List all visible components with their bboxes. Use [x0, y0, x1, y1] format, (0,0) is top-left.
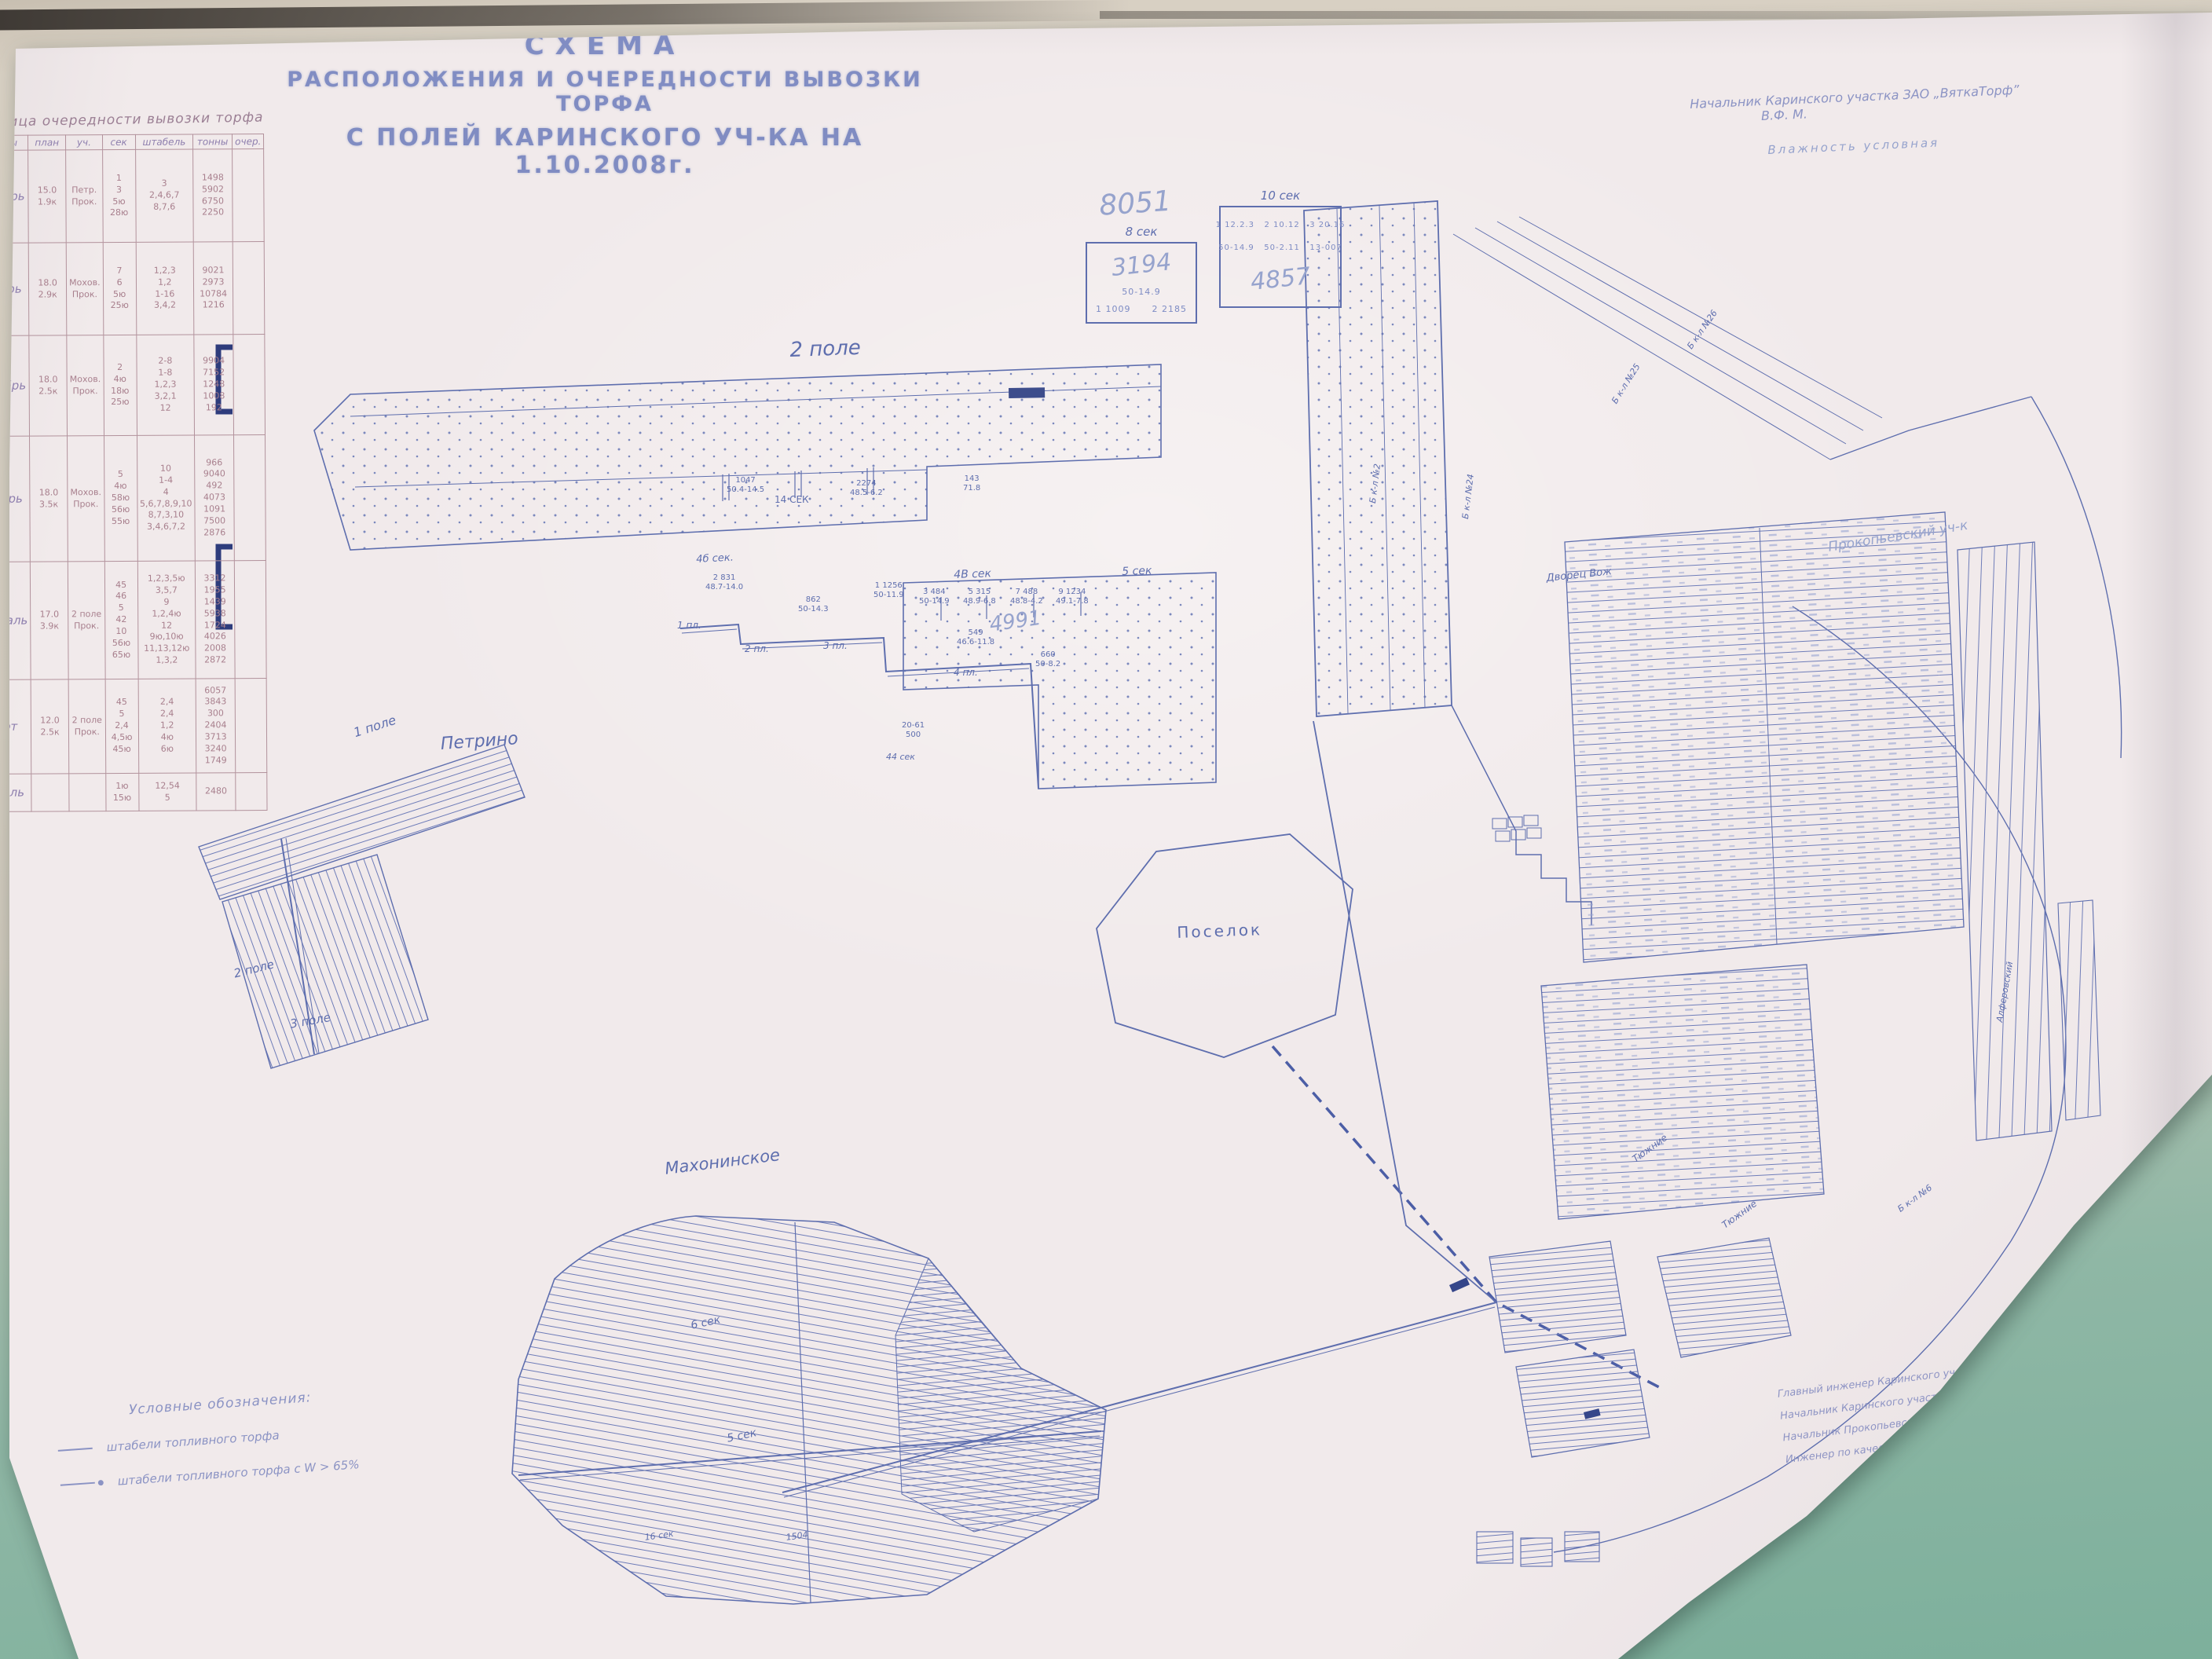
- cell-plan: 15.0 1.9к: [28, 150, 67, 243]
- sig-name-chief-engineer: Н.А. Рыжков: [2124, 1338, 2192, 1357]
- stack-value: 549 46.6-11.8: [957, 628, 994, 646]
- cell-tons: 966 9040 492 4073 1091 7500 2876: [195, 435, 235, 561]
- stack-box-10sek: 10 сек 1 12.2.3 2 10.12 3 20.16 50-14.9 …: [1219, 206, 1342, 308]
- stack-box-10sek-label: 10 сек: [1221, 189, 1340, 203]
- table-row: Ноябрь 18.0 2.9к Мохов. Прок. 7 6 5ю 25ю…: [0, 242, 265, 336]
- col-uch: уч.: [66, 135, 103, 150]
- col-order: очер.: [233, 134, 264, 149]
- label-sek14: 14 СЕК: [775, 495, 809, 506]
- cell-order: [233, 335, 266, 435]
- cell-order: [234, 561, 266, 679]
- col-sek: сек: [102, 134, 135, 149]
- sig-name-quality-engineer: [2198, 1404, 2199, 1415]
- cell-uch: Петр. Прок.: [66, 150, 103, 243]
- label-sek44: 44 сек: [886, 753, 915, 763]
- cell-shtabel: 1,2,3 1,2 1-16 3,4,2: [136, 242, 194, 335]
- label-pl4: 4 пл.: [954, 668, 978, 679]
- stack-value: 7 488 48.8-4.2: [1010, 588, 1043, 606]
- cell-shtabel: 12,54 5: [138, 773, 196, 811]
- cell-uch: Мохов. Прок.: [66, 243, 103, 335]
- stack-line-dot-symbol: [60, 1482, 95, 1486]
- label-sek4b: 4б сек.: [696, 553, 734, 566]
- cell-month: Март: [0, 679, 31, 774]
- cell-shtabel: 3 2,4,6,7 8,7,6: [135, 149, 193, 242]
- label-pl3: 3 пл.: [823, 641, 848, 652]
- col-month: месяцы: [0, 135, 28, 150]
- cell-tons: 1498 5902 6750 2250: [193, 149, 233, 242]
- order-table: месяцы план уч. сек штабель тонны очер. …: [0, 134, 268, 812]
- paper-fold-shadow: [2121, 0, 2212, 1178]
- cell-plan: 18.0 2.5к: [29, 335, 68, 436]
- sheet-title: СХЕМА РАСПОЛОЖЕНИЯ И ОЧЕРЕДНОСТИ ВЫВОЗКИ…: [259, 30, 950, 179]
- stack-box-8sek-bottom: 1 1009 2 2185: [1096, 304, 1187, 314]
- cell-month: Декабрь: [0, 335, 30, 436]
- photo-scene: СХЕМА РАСПОЛОЖЕНИЯ И ОЧЕРЕДНОСТИ ВЫВОЗКИ…: [0, 0, 2212, 1659]
- table-row: Апрель 1ю 15ю 12,54 5 2480: [0, 773, 267, 812]
- stack-line-symbol: [58, 1448, 93, 1452]
- stack-box-10sek-total: 4857: [1249, 262, 1312, 296]
- table-row: Октябрь 15.0 1.9к Петр. Прок. 1 3 5ю 28ю…: [0, 149, 265, 244]
- pencil-total: 8051: [1098, 185, 1172, 222]
- table-row: Март 12.0 2.5к 2 поле Прок. 45 5 2,4 4,5…: [0, 679, 267, 775]
- cell-sek: 45 5 2,4 4,5ю 45ю: [105, 679, 139, 773]
- cell-order: [233, 149, 265, 242]
- stack-box-8sek-label: 8 сек: [1087, 225, 1196, 239]
- table-row: Январь 18.0 3.5к Мохов. Прок. 5 4ю 58ю 5…: [0, 435, 266, 562]
- order-table-header: месяцы план уч. сек штабель тонны очер.: [0, 134, 264, 151]
- stack-box-8sek-mid: 50-14.9: [1122, 287, 1160, 297]
- cell-tons: 2480: [196, 773, 236, 811]
- cell-shtabel: 2,4 2,4 1,2 4ю 6ю: [138, 679, 196, 773]
- label-sek4v: 4В сек: [954, 567, 991, 581]
- stack-box-10sek-mid: 50-14.9 50-2.11 13-007: [1218, 244, 1342, 252]
- cell-plan: 12.0 2.5к: [31, 679, 69, 774]
- sig-role-quality-engineer: Инженер по качеству: [1785, 1440, 1903, 1466]
- cell-order: [234, 435, 266, 561]
- cell-month: Ноябрь: [0, 243, 29, 335]
- stack-value: 3 484 50-14.9: [919, 588, 950, 606]
- cell-sek: 7 6 5ю 25ю: [103, 242, 137, 335]
- cell-sek: 1 3 5ю 28ю: [102, 149, 136, 242]
- stack-value: 660 50-8.2: [1035, 650, 1060, 668]
- label-pl1: 1 пл.: [677, 621, 701, 632]
- cell-uch: Мохов. Прок.: [68, 436, 104, 562]
- cell-order: [235, 679, 267, 773]
- cell-tons: 9021 2973 10784 1216: [193, 242, 233, 335]
- stack-value: 2 831 48.7-14.0: [705, 573, 743, 591]
- col-shtabel: штабель: [135, 134, 193, 149]
- cell-plan: [31, 774, 69, 811]
- stack-value: 1047 50.4-14.5: [727, 476, 764, 494]
- stack-value: 20-61 500: [902, 721, 925, 739]
- title-line1: СХЕМА: [259, 30, 950, 61]
- cell-sek: 5 4ю 58ю 56ю 55ю: [104, 435, 137, 561]
- sig-name-karinsky-chief: В.В. Зайцев: [2131, 1360, 2195, 1379]
- table-row: Февраль 17.0 3.9к 2 поле Прок. 45 46 5 4…: [0, 561, 266, 680]
- title-line3: С ПОЛЕЙ КАРИНСКОГО УЧ-КА НА 1.10.2008г.: [259, 124, 950, 179]
- cell-uch: Мохов. Прок.: [67, 335, 104, 436]
- approval-signature: В.Ф. М.: [1761, 107, 1808, 124]
- label-pl2: 2 пл.: [745, 644, 769, 655]
- cell-tons: 6057 3843 300 2404 3713 3240 1749: [196, 679, 236, 773]
- title-line2: РАСПОЛОЖЕНИЯ И ОЧЕРЕДНОСТИ ВЫВОЗКИ ТОРФА: [259, 68, 950, 116]
- stack-value: 143 71.8: [963, 474, 980, 493]
- stack-box-8sek-total: 3194: [1110, 248, 1173, 282]
- cell-shtabel: 2-8 1-8 1,2,3 3,2,1 12: [136, 335, 194, 435]
- cell-tons: 9904 7152 1248 1008 192: [194, 335, 234, 435]
- stack-value: 2274 48.5-6.2: [850, 479, 883, 497]
- cell-uch: [69, 774, 106, 811]
- label-settlement: Поселок: [1177, 921, 1262, 942]
- cell-plan: 18.0 3.5к: [30, 436, 68, 562]
- cell-sek: 1ю 15ю: [105, 773, 138, 811]
- col-tons: тонны: [193, 134, 233, 149]
- stack-box-8sek: 8 сек 3194 50-14.9 1 1009 2 2185: [1086, 242, 1197, 324]
- paper-shadow-wrap: СХЕМА РАСПОЛОЖЕНИЯ И ОЧЕРЕДНОСТИ ВЫВОЗКИ…: [0, 0, 2212, 1659]
- cell-plan: 17.0 3.9к: [30, 562, 68, 679]
- col-plan: план: [28, 135, 66, 150]
- label-field-2: 2 поле: [789, 337, 861, 363]
- cell-sek: 2 4ю 18ю 25ю: [103, 335, 137, 435]
- cell-plan: 18.0 2.9к: [28, 243, 67, 335]
- legend-item-fuel-peat: штабели топливного торфа: [106, 1428, 280, 1454]
- stack-value: 1 1256 50-11.9: [873, 581, 904, 599]
- approval-note-text: Начальник Каринского участка ЗАО „ВяткаТ…: [1690, 82, 2020, 112]
- cell-shtabel: 10 1-4 4 5,6,7,8,9,10 8,7,3,10 3,4,6,7,2: [137, 435, 195, 561]
- stack-value: 5 315 48.9-6.8: [963, 588, 996, 606]
- cell-month: Октябрь: [0, 150, 28, 243]
- cell-sek: 45 46 5 42 10 56ю 65ю: [104, 561, 138, 679]
- stack-dot-symbol: [98, 1479, 104, 1485]
- cell-uch: 2 поле Прок.: [68, 679, 105, 774]
- cell-month: Январь: [0, 436, 30, 562]
- cell-month: Апрель: [0, 774, 31, 811]
- label-sek5-field2: 5 сек: [1122, 565, 1152, 578]
- sig-name-prokopyevsky-chief: И.Н. Ушин: [2142, 1382, 2197, 1400]
- cell-order: [233, 242, 265, 335]
- stack-box-10sek-top: 1 12.2.3 2 10.12 3 20.16: [1216, 221, 1346, 229]
- map-sheet: СХЕМА РАСПОЛОЖЕНИЯ И ОЧЕРЕДНОСТИ ВЫВОЗКИ…: [0, 0, 2212, 1659]
- cell-shtabel: 1,2,3,5ю 3,5,7 9 1,2,4ю 12 9ю,10ю 11,13,…: [137, 561, 196, 679]
- cell-tons: 3312 1955 1439 5938 1724 4026 2008 2872: [195, 561, 235, 679]
- table-row: Декабрь 18.0 2.5к Мохов. Прок. 2 4ю 18ю …: [0, 335, 266, 437]
- stack-value: 9 1234 49.1-7.8: [1056, 588, 1089, 606]
- stack-value: 862 50-14.3: [798, 595, 829, 613]
- cell-uch: 2 поле Прок.: [68, 562, 104, 679]
- cell-order: [236, 773, 268, 811]
- cell-month: Февраль: [0, 562, 31, 679]
